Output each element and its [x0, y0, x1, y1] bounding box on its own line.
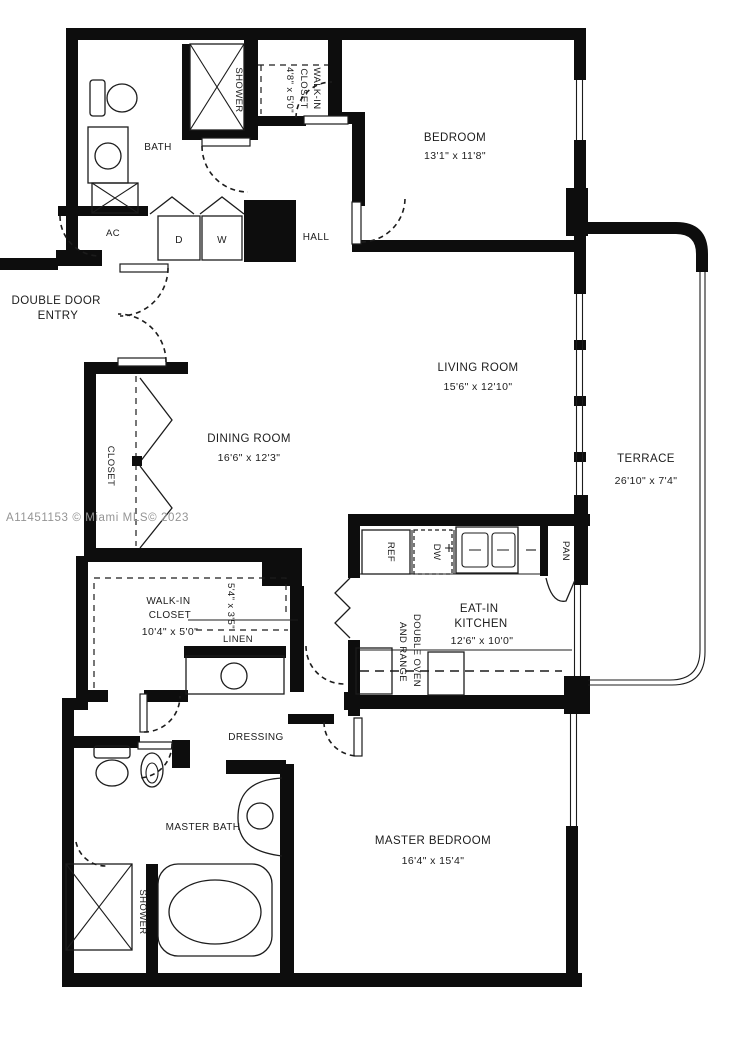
- watermark: A11451153 © Miami MLS© 2023: [6, 512, 189, 524]
- master-bedroom-door-leaf: [354, 718, 362, 756]
- label-terrace-dims: 26'10" x 7'4": [615, 475, 678, 487]
- label-pan: PAN: [560, 541, 571, 561]
- fixtures: [66, 44, 572, 956]
- closet-bifold-2: [140, 466, 172, 548]
- label-dressing: DRESSING: [228, 732, 283, 743]
- master-toilet-icon: [94, 746, 130, 786]
- entry-door-leaf-1: [120, 264, 168, 272]
- bedroom-door-leaf: [352, 202, 361, 244]
- bath-door-arc: [202, 146, 248, 192]
- label-entry: DOUBLE DOOR ENTRY: [12, 295, 105, 322]
- kitchen-sink-icon: [456, 527, 518, 573]
- label-bedroom: BEDROOM: [424, 132, 486, 144]
- label-closet-ext-dims: 5'4" x 3'5": [225, 583, 236, 629]
- label-washer: W: [217, 235, 227, 246]
- bath-door-leaf: [202, 138, 250, 146]
- label-walkin-master: WALK-IN CLOSET: [146, 596, 193, 621]
- label-shower-master: SHOWER: [137, 889, 148, 934]
- kitchen-bifold: [335, 578, 350, 638]
- label-hall: HALL: [303, 232, 330, 243]
- laundry-bifold-1: [150, 197, 194, 214]
- walls: [0, 28, 708, 987]
- range-box: [428, 652, 464, 695]
- pantry-door: [546, 578, 575, 601]
- doors: [60, 82, 575, 866]
- label-dw: DW: [431, 544, 442, 561]
- label-bedroom-dims: 13'1" x 11'8": [424, 150, 486, 162]
- walkin-master-door-leaf: [140, 694, 147, 732]
- master-shower-door-arc: [76, 842, 106, 866]
- label-dining: DINING ROOM: [207, 433, 291, 445]
- entry-door-leaf-2: [118, 358, 166, 366]
- master-bedroom-door-arc: [324, 722, 358, 756]
- label-ref: REF: [385, 542, 396, 562]
- entry-door-arc-2: [118, 314, 166, 362]
- bedroom-door-arc: [361, 198, 405, 242]
- label-double-oven: DOUBLE OVEN AND RANGE: [397, 614, 422, 690]
- walkin-top-door-leaf: [304, 116, 348, 124]
- dressing-door-arc: [306, 646, 344, 684]
- master-tub-icon: [158, 864, 272, 956]
- label-master-bath: MASTER BATH: [166, 822, 241, 833]
- label-dryer: D: [175, 235, 183, 246]
- floor-plan: BATH SHOWER WALK-IN CLOSET 4'8" x 5'0" B…: [0, 0, 738, 1045]
- label-living-dims: 15'6" x 12'10": [443, 381, 512, 393]
- master-bath-door-leaf: [138, 742, 172, 749]
- master-shower-icon: [66, 864, 132, 950]
- entry-door-arc-1: [120, 268, 168, 316]
- label-dining-dims: 16'6" x 12'3": [218, 452, 281, 464]
- label-kitchen: EAT-IN KITCHEN: [454, 603, 507, 630]
- label-bath: BATH: [144, 142, 172, 153]
- master-vanity-icon: [238, 778, 282, 856]
- label-ac: AC: [106, 228, 120, 239]
- label-terrace: TERRACE: [617, 453, 675, 465]
- bath-vanity-sink-icon: [88, 127, 128, 183]
- label-closet: CLOSET: [105, 446, 116, 486]
- label-master-bedroom-dims: 16'4" x 15'4": [402, 855, 465, 867]
- closet-bifold-hinge: [132, 456, 142, 466]
- closet-bifold-1: [140, 378, 172, 462]
- label-shower-bath: SHOWER: [233, 67, 244, 112]
- label-linen: LINEN: [223, 634, 253, 645]
- kitchen-range-counter: [356, 648, 572, 695]
- linen-shelf: [188, 620, 298, 630]
- laundry-bifold-2: [200, 197, 244, 214]
- label-master-bedroom: MASTER BEDROOM: [375, 835, 491, 847]
- floor-plan-page: BATH SHOWER WALK-IN CLOSET 4'8" x 5'0" B…: [0, 0, 738, 1045]
- label-walkin-top: WALK-IN CLOSET 4'8" x 5'0": [284, 67, 322, 113]
- label-living: LIVING ROOM: [437, 362, 518, 374]
- bath-toilet-icon: [90, 80, 137, 116]
- label-kitchen-dims: 12'6" x 10'0": [451, 635, 514, 647]
- dressing-vanity-icon: [186, 656, 284, 694]
- label-walkin-master-dims: 10'4" x 5'0": [142, 626, 199, 638]
